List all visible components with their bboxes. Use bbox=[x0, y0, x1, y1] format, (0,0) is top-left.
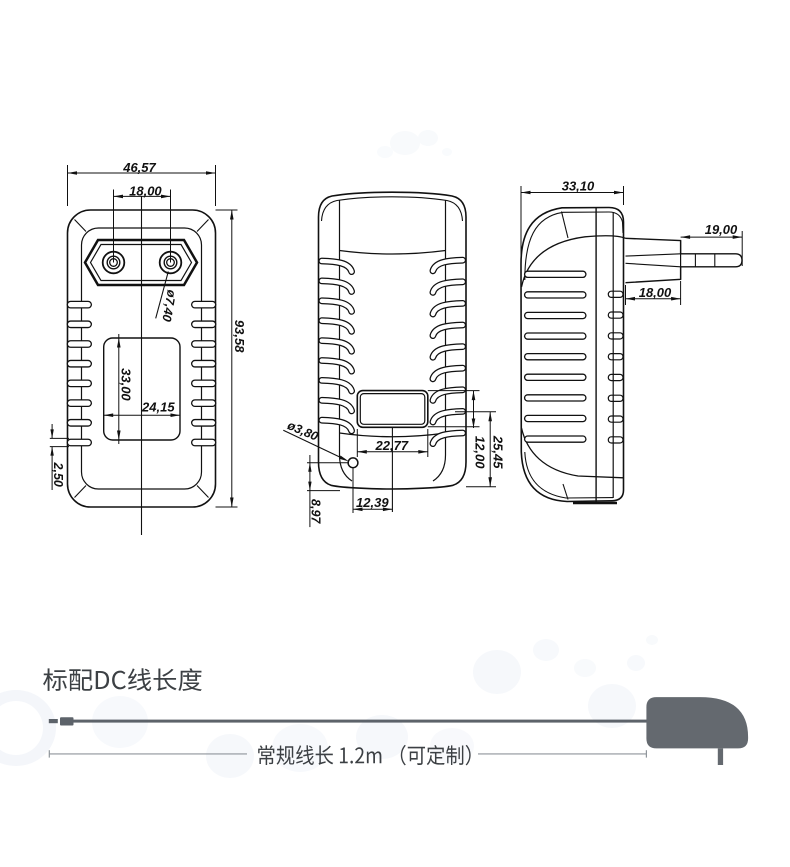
svg-text:25,45: 25,45 bbox=[491, 435, 506, 469]
svg-text:33,00: 33,00 bbox=[119, 368, 134, 401]
svg-text:22,77: 22,77 bbox=[375, 438, 409, 453]
svg-text:19,00: 19,00 bbox=[705, 222, 738, 237]
svg-text:12,00: 12,00 bbox=[473, 436, 488, 469]
svg-text:46,57: 46,57 bbox=[122, 160, 156, 175]
svg-text:12,39: 12,39 bbox=[356, 495, 389, 510]
svg-text:93,58: 93,58 bbox=[232, 320, 247, 353]
svg-text:18,00: 18,00 bbox=[129, 183, 162, 198]
svg-text:33,10: 33,10 bbox=[562, 178, 595, 193]
svg-text:2,50: 2,50 bbox=[51, 462, 65, 487]
svg-text:24,15: 24,15 bbox=[141, 400, 175, 415]
svg-text:18,00: 18,00 bbox=[639, 285, 672, 300]
svg-text:8,97: 8,97 bbox=[309, 499, 323, 524]
